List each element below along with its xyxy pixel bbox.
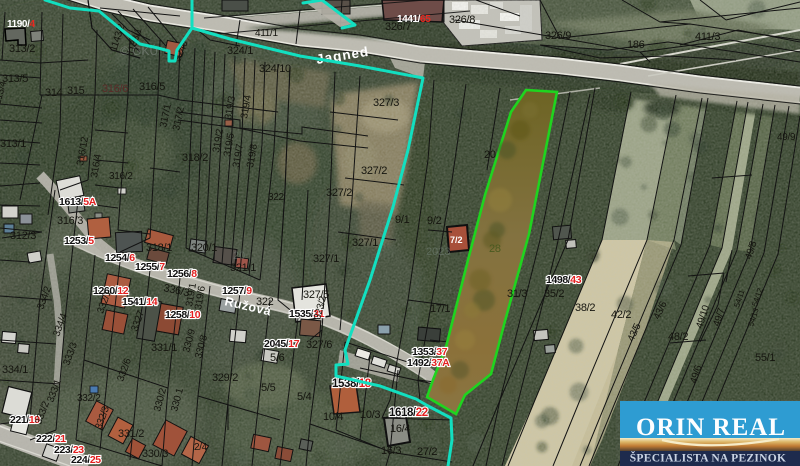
svg-text:38/2: 38/2: [575, 302, 595, 314]
svg-text:327/6: 327/6: [306, 339, 332, 351]
svg-text:17/1: 17/1: [430, 303, 450, 315]
svg-text:7/2: 7/2: [450, 235, 463, 245]
svg-text:314: 314: [45, 87, 63, 99]
svg-text:327/2: 327/2: [361, 165, 387, 177]
svg-text:9/2: 9/2: [427, 215, 442, 227]
svg-text:1256/8: 1256/8: [167, 268, 197, 280]
svg-text:2/4: 2/4: [194, 442, 208, 453]
svg-text:1254/6: 1254/6: [105, 252, 135, 264]
svg-text:5/6: 5/6: [270, 352, 285, 364]
svg-text:16/4: 16/4: [390, 423, 410, 435]
svg-text:326/9: 326/9: [545, 30, 571, 42]
svg-text:329/2: 329/2: [212, 372, 238, 384]
svg-text:332/2: 332/2: [77, 393, 101, 404]
svg-text:28: 28: [489, 243, 501, 255]
svg-text:1613/5A: 1613/5A: [59, 196, 97, 208]
svg-text:16/3: 16/3: [381, 445, 401, 457]
svg-text:1190/4: 1190/4: [7, 19, 35, 30]
svg-text:313/1: 313/1: [0, 138, 26, 150]
svg-text:313/2: 313/2: [9, 43, 35, 55]
svg-text:334/1: 334/1: [2, 364, 28, 376]
svg-text:327/1: 327/1: [352, 237, 378, 249]
svg-text:316/5: 316/5: [139, 81, 165, 93]
svg-text:331/1: 331/1: [151, 342, 177, 354]
svg-text:324/10: 324/10: [259, 63, 291, 75]
svg-text:316/3: 316/3: [57, 215, 83, 227]
svg-text:42/2: 42/2: [611, 309, 631, 321]
svg-text:27/2: 27/2: [417, 446, 437, 458]
svg-text:20: 20: [484, 149, 496, 161]
svg-text:318/1: 318/1: [146, 242, 172, 254]
svg-text:ORIN REAL: ORIN REAL: [636, 414, 786, 441]
svg-text:327/1: 327/1: [313, 253, 339, 265]
svg-text:49/9: 49/9: [777, 132, 796, 143]
svg-text:1257/9: 1257/9: [222, 285, 252, 297]
svg-text:318/2: 318/2: [182, 152, 208, 164]
svg-text:316/6: 316/6: [102, 83, 128, 95]
svg-text:411/3: 411/3: [695, 31, 720, 43]
svg-text:55/1: 55/1: [755, 352, 775, 364]
svg-text:326/7: 326/7: [385, 21, 411, 33]
svg-text:411/1: 411/1: [255, 28, 279, 39]
svg-text:1618/22: 1618/22: [389, 407, 428, 419]
svg-text:1258/10: 1258/10: [165, 309, 201, 321]
svg-text:48/2: 48/2: [668, 331, 688, 343]
svg-text:324/1: 324/1: [227, 45, 253, 57]
svg-text:312/3: 312/3: [10, 230, 36, 242]
svg-text:315: 315: [67, 85, 85, 97]
svg-text:1253/5: 1253/5: [64, 235, 94, 247]
svg-text:31/3: 31/3: [507, 288, 527, 300]
svg-text:224/25: 224/25: [71, 454, 101, 466]
svg-text:331/2: 331/2: [118, 428, 144, 440]
svg-text:1492/37A: 1492/37A: [407, 357, 450, 369]
svg-text:326/8: 326/8: [449, 14, 475, 26]
svg-text:330/3: 330/3: [142, 448, 168, 460]
svg-text:321/1: 321/1: [230, 262, 256, 274]
svg-text:322: 322: [268, 192, 285, 203]
svg-text:322: 322: [256, 296, 274, 308]
svg-text:20: 20: [233, 250, 245, 262]
svg-text:1541/14: 1541/14: [122, 296, 158, 308]
svg-text:1255/7: 1255/7: [135, 261, 165, 273]
svg-text:2045/17: 2045/17: [264, 338, 300, 350]
svg-text:327/3: 327/3: [373, 97, 399, 109]
svg-text:186: 186: [627, 39, 645, 51]
svg-text:5/4: 5/4: [297, 391, 312, 403]
svg-text:10/3: 10/3: [360, 409, 380, 421]
svg-text:316/2: 316/2: [109, 171, 133, 182]
svg-text:35/2: 35/2: [544, 288, 564, 300]
svg-text:320/1: 320/1: [191, 242, 217, 254]
svg-text:2023: 2023: [426, 246, 450, 258]
svg-text:1498/43: 1498/43: [546, 274, 582, 286]
svg-text:ŠPECIALISTA NA PEZINOK: ŠPECIALISTA NA PEZINOK: [630, 451, 787, 465]
svg-text:10/4: 10/4: [323, 411, 343, 423]
svg-text:9/1: 9/1: [395, 214, 410, 226]
svg-text:327/2: 327/2: [326, 187, 352, 199]
svg-text:5/5: 5/5: [261, 382, 276, 394]
